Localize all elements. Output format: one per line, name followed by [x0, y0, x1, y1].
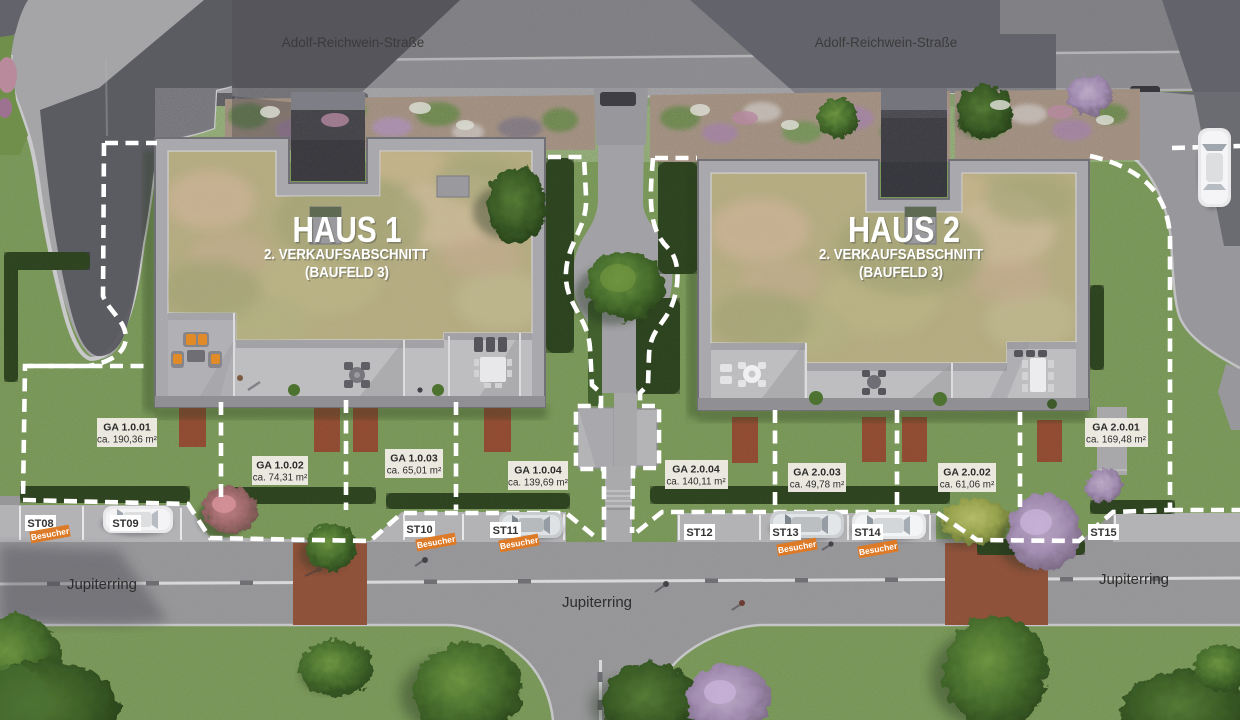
svg-text:(BAUFELD 3): (BAUFELD 3) — [859, 264, 943, 281]
svg-text:GA 2.0.04: GA 2.0.04 — [672, 464, 720, 476]
svg-text:ca. 61,06 m²: ca. 61,06 m² — [940, 480, 995, 491]
svg-text:GA 2.0.03: GA 2.0.03 — [793, 467, 841, 479]
svg-text:GA 1.0.02: GA 1.0.02 — [256, 460, 304, 472]
svg-text:ST12: ST12 — [686, 527, 712, 539]
svg-text:ca. 140,11 m²: ca. 140,11 m² — [666, 477, 726, 488]
svg-text:GA 2.0.02: GA 2.0.02 — [943, 467, 991, 479]
svg-text:(BAUFELD 3): (BAUFELD 3) — [305, 264, 389, 281]
svg-text:HAUS 1: HAUS 1 — [293, 209, 402, 250]
svg-text:ST15: ST15 — [1090, 527, 1116, 539]
svg-text:ST09: ST09 — [112, 518, 138, 530]
svg-text:ST11: ST11 — [493, 525, 519, 537]
svg-text:Adolf-Reichwein-Straße: Adolf-Reichwein-Straße — [815, 35, 958, 50]
svg-text:GA 1.0.04: GA 1.0.04 — [514, 465, 562, 477]
svg-text:ca. 65,01 m²: ca. 65,01 m² — [387, 466, 442, 477]
svg-text:ST14: ST14 — [854, 527, 881, 539]
svg-text:ca. 190,36 m²: ca. 190,36 m² — [97, 435, 158, 446]
svg-text:ca. 74,31 m²: ca. 74,31 m² — [253, 473, 308, 484]
svg-text:ST13: ST13 — [772, 527, 798, 539]
svg-text:GA 1.0.03: GA 1.0.03 — [390, 453, 438, 465]
svg-text:Jupiterring: Jupiterring — [1099, 571, 1169, 588]
svg-text:Adolf-Reichwein-Straße: Adolf-Reichwein-Straße — [282, 35, 425, 50]
svg-text:2. VERKAUFSABSCHNITT: 2. VERKAUFSABSCHNITT — [264, 247, 428, 263]
svg-text:HAUS 2: HAUS 2 — [848, 209, 960, 250]
svg-text:ST10: ST10 — [406, 524, 432, 536]
svg-text:Jupiterring: Jupiterring — [562, 594, 632, 611]
svg-text:Jupiterring: Jupiterring — [67, 576, 137, 593]
svg-text:ca. 139,69 m²: ca. 139,69 m² — [508, 478, 569, 489]
svg-text:GA 1.0.01: GA 1.0.01 — [103, 422, 151, 434]
svg-text:ca. 169,48 m²: ca. 169,48 m² — [1086, 435, 1147, 446]
svg-text:GA 2.0.01: GA 2.0.01 — [1092, 422, 1140, 434]
svg-text:ca. 49,78 m²: ca. 49,78 m² — [790, 480, 845, 491]
svg-text:2. VERKAUFSABSCHNITT: 2. VERKAUFSABSCHNITT — [819, 247, 983, 263]
